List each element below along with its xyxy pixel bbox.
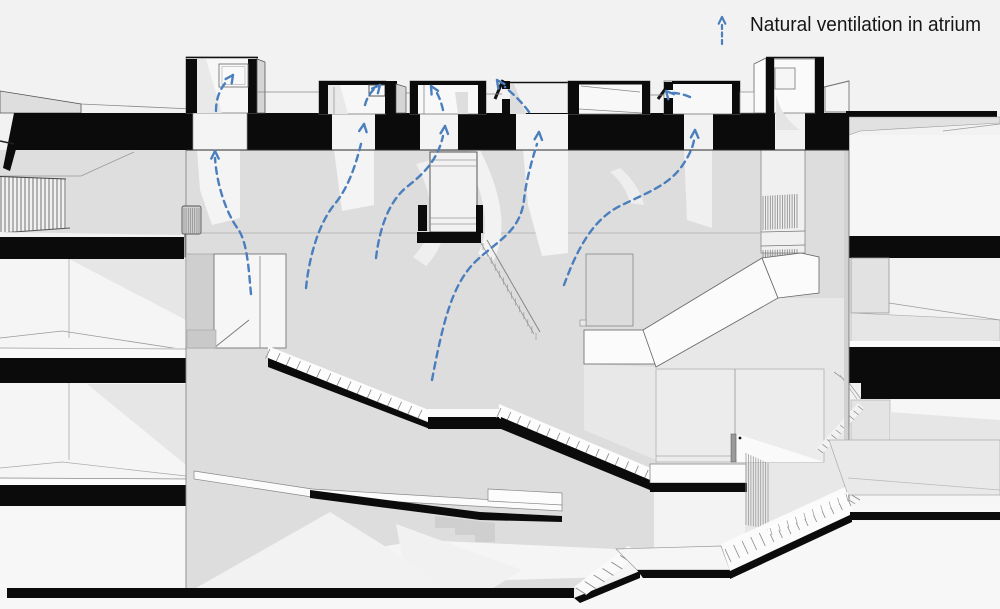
svg-text:Natural ventilation in atrium: Natural ventilation in atrium — [750, 13, 981, 36]
